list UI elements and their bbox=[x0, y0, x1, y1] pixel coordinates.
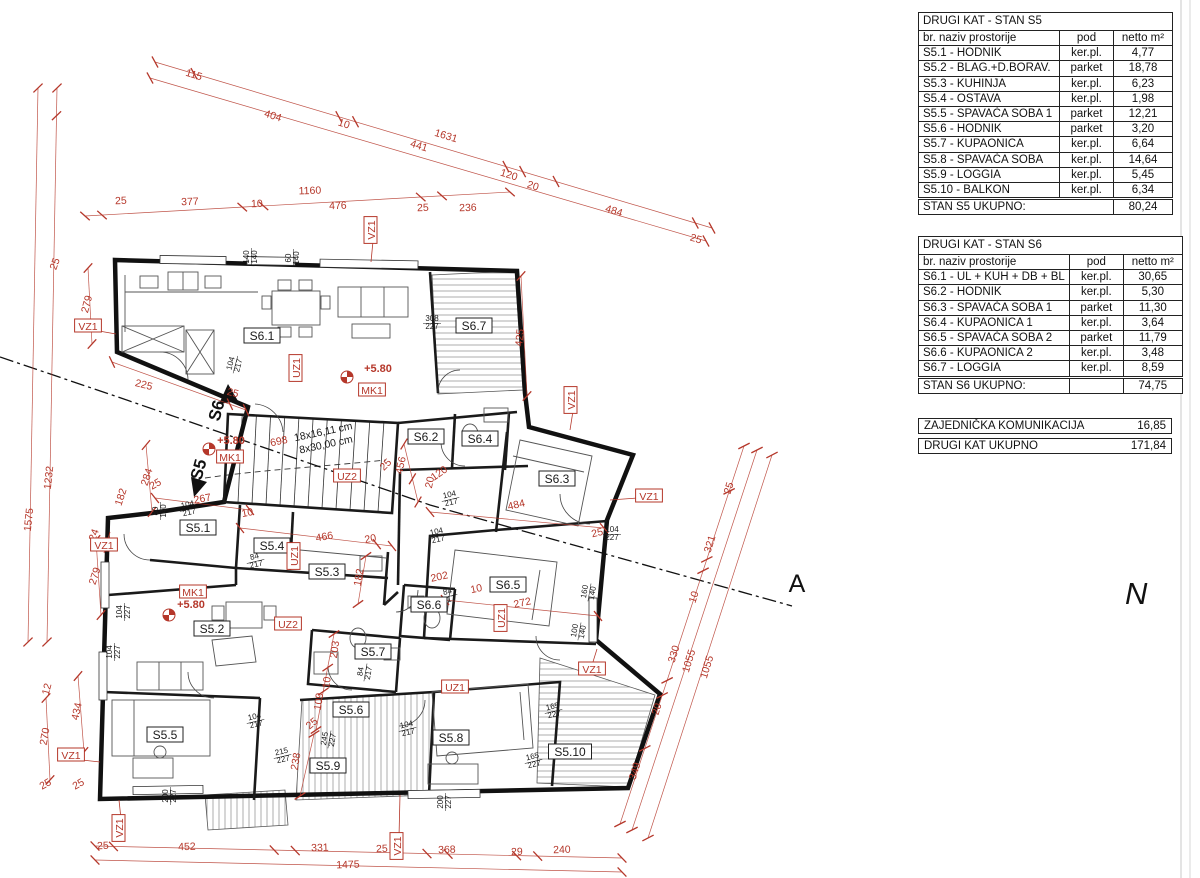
table-row: S5.10 - BALKONker.pl.6,34 bbox=[919, 182, 1173, 198]
summary-label: ZAJEDNIČKA KOMUNIKACIJA bbox=[924, 420, 1084, 432]
room-label: S5.9 bbox=[310, 758, 346, 773]
svg-text:MK1: MK1 bbox=[182, 587, 204, 599]
cell: 14,64 bbox=[1114, 152, 1173, 167]
dimension-label: 330 bbox=[666, 644, 683, 664]
dimension-label: 240 bbox=[553, 844, 571, 857]
stair-step bbox=[266, 417, 271, 505]
cell: S6.7 - LOGGIA bbox=[919, 361, 1070, 377]
stair-step bbox=[364, 423, 370, 512]
summary-value: 16,85 bbox=[1137, 420, 1166, 432]
dimension-line bbox=[404, 444, 418, 502]
svg-text:S6.4: S6.4 bbox=[468, 432, 493, 446]
cell: parket bbox=[1069, 300, 1123, 315]
dimension-label: 441 bbox=[409, 138, 429, 155]
cell: ker.pl. bbox=[1060, 46, 1114, 61]
dimension-label: 466 bbox=[315, 529, 335, 544]
dimension-tick bbox=[751, 447, 762, 453]
svg-text:S6.2: S6.2 bbox=[414, 430, 439, 444]
cell: ker.pl. bbox=[1060, 137, 1114, 152]
dimension-label: 1055 bbox=[680, 648, 698, 674]
dimension-tick bbox=[353, 600, 363, 607]
col-header: netto m² bbox=[1114, 31, 1173, 46]
cell: S6.2 - HODNIK bbox=[919, 285, 1070, 300]
dimension-tick bbox=[520, 166, 526, 177]
dimension-label: 25 bbox=[48, 256, 63, 271]
svg-text:S6.6: S6.6 bbox=[417, 598, 442, 612]
marker-label-vz1: VZ1 bbox=[91, 538, 118, 552]
svg-text:VZ1: VZ1 bbox=[392, 836, 404, 855]
table-row: S5.3 - KUHINJAker.pl.6,23 bbox=[919, 76, 1173, 91]
dimension-tick bbox=[697, 568, 708, 574]
svg-text:S6.3: S6.3 bbox=[545, 472, 570, 486]
dimension-label: 331 bbox=[311, 842, 329, 855]
dimension-label: 20 bbox=[526, 179, 541, 194]
dimension-label: 20 bbox=[650, 702, 665, 717]
dimension-label: 20 bbox=[364, 532, 378, 546]
dimension-tick bbox=[738, 443, 749, 449]
cell: 3,20 bbox=[1114, 122, 1173, 137]
table-row: S6.5 - SPAVAĆA SOBA 2parket11,79 bbox=[919, 330, 1183, 345]
dimension-tick bbox=[409, 473, 416, 484]
cell: ker.pl. bbox=[1069, 315, 1123, 330]
section-line bbox=[0, 357, 792, 606]
size-label: 160140 bbox=[579, 582, 599, 603]
level-marker bbox=[203, 443, 215, 455]
table-title: DRUGI KAT - STAN S6 bbox=[919, 237, 1183, 255]
svg-text:UZ2: UZ2 bbox=[337, 471, 357, 483]
dimension-label: 25 bbox=[70, 776, 86, 792]
kitchen-counter bbox=[125, 275, 258, 332]
size-label: 104227 bbox=[115, 603, 132, 621]
stair-step bbox=[280, 418, 285, 506]
svg-text:VZ1: VZ1 bbox=[78, 321, 97, 333]
dimension-tick bbox=[322, 664, 333, 671]
svg-text:S5.7: S5.7 bbox=[361, 645, 386, 659]
cell: S6.1 - UL + KUH + DB + BL bbox=[919, 270, 1070, 285]
cell: S5.9 - LOGGIA bbox=[919, 167, 1060, 182]
dimension-label: 1475 bbox=[336, 859, 360, 872]
dimension-label: 10 bbox=[241, 506, 255, 520]
col-header: pod bbox=[1060, 31, 1114, 46]
room-label: S5.2 bbox=[194, 621, 230, 636]
table-row: S6.3 - SPAVAĆA SOBA 1parket11,30 bbox=[919, 300, 1183, 315]
size-label: 104227 bbox=[105, 643, 122, 661]
stove bbox=[205, 276, 221, 288]
dimension-tick bbox=[109, 356, 114, 368]
col-header: br. naziv prostorije bbox=[919, 31, 1060, 46]
col-header: br. naziv prostorije bbox=[919, 255, 1070, 270]
svg-text:S5.5: S5.5 bbox=[153, 728, 178, 742]
dimension-line bbox=[95, 846, 622, 858]
svg-text:S5.8: S5.8 bbox=[439, 731, 464, 745]
svg-text:S6.1: S6.1 bbox=[250, 329, 275, 343]
size-label: 80140 bbox=[151, 502, 168, 520]
svg-text:S5.9: S5.9 bbox=[316, 759, 341, 773]
cell: 4,77 bbox=[1114, 46, 1173, 61]
svg-text:S5.1: S5.1 bbox=[186, 521, 211, 535]
svg-text:MK1: MK1 bbox=[219, 452, 241, 464]
dimension-label: 12 bbox=[40, 682, 55, 697]
dimension-line bbox=[85, 192, 510, 216]
room-label: S6.7 bbox=[456, 318, 492, 333]
svg-text:S5.4: S5.4 bbox=[260, 539, 285, 553]
table-row: S6.4 - KUPAONICA 1ker.pl.3,64 bbox=[919, 315, 1183, 330]
total-value: 74,75 bbox=[1123, 377, 1182, 393]
marker-label-uz1: UZ1 bbox=[442, 680, 469, 694]
sofa-s61 bbox=[338, 287, 408, 338]
dimension-tick bbox=[692, 217, 698, 228]
dimension-tick bbox=[701, 557, 712, 563]
dimension-label: 202 bbox=[430, 569, 450, 584]
cell: parket bbox=[1069, 330, 1123, 345]
dimension-label: 236 bbox=[459, 202, 477, 215]
table-row: S5.2 - BLAG.+D.BORAV.parket18,78 bbox=[919, 61, 1173, 76]
room-label: S6.6 bbox=[411, 597, 447, 612]
stair-arrow-label-s5: S5 bbox=[187, 457, 211, 482]
room-label: S6.2 bbox=[408, 429, 444, 444]
dimension-label: 25 bbox=[689, 232, 704, 247]
table-row: S5.8 - SPAVAĆA SOBAker.pl.14,64 bbox=[919, 152, 1173, 167]
dimension-label: 109 bbox=[312, 692, 326, 711]
stair-step bbox=[252, 417, 256, 504]
dimension-tick bbox=[152, 56, 158, 67]
dimension-label: 225 bbox=[134, 377, 154, 393]
cell: 5,45 bbox=[1114, 167, 1173, 182]
dimension-label: 29 bbox=[511, 846, 523, 858]
marker-label-vz1: VZ1 bbox=[636, 489, 663, 503]
dimension-tick bbox=[709, 222, 715, 233]
dimension-line bbox=[47, 88, 57, 642]
room-label: S5.8 bbox=[433, 730, 469, 745]
marker-label-vz1: VZ1 bbox=[390, 833, 404, 860]
marker-label-mk1: MK1 bbox=[180, 585, 207, 599]
cell: S5.1 - HODNIK bbox=[919, 46, 1060, 61]
cell: 8,59 bbox=[1123, 361, 1182, 377]
dimension-label: 10 bbox=[687, 590, 702, 605]
room-label: S5.4 bbox=[254, 538, 290, 553]
marker-label-uz1: UZ1 bbox=[289, 355, 303, 382]
cell: 6,34 bbox=[1114, 182, 1173, 198]
cell: ker.pl. bbox=[1060, 91, 1114, 106]
table-row: S5.9 - LOGGIAker.pl.5,45 bbox=[919, 167, 1173, 182]
dimension-label: 1575 bbox=[22, 507, 36, 532]
size-label: 84217 bbox=[355, 662, 375, 683]
cell: S6.6 - KUPAONICA 2 bbox=[919, 346, 1070, 361]
dimension-label: 25 bbox=[722, 481, 737, 496]
size-label: 104217 bbox=[245, 710, 266, 731]
cell: 18,78 bbox=[1114, 61, 1173, 76]
room-label: S5.7 bbox=[355, 644, 391, 659]
svg-text:VZ1: VZ1 bbox=[61, 750, 80, 762]
dimension-label: 1160 bbox=[298, 185, 321, 198]
cell: 5,30 bbox=[1123, 285, 1182, 300]
room-label: S6.5 bbox=[490, 577, 526, 592]
dimension-label: 321 bbox=[702, 534, 719, 554]
cell: 6,23 bbox=[1114, 76, 1173, 91]
size-label: 308227 bbox=[423, 314, 441, 331]
dimension-label: 203 bbox=[328, 640, 342, 659]
svg-text:VZ1: VZ1 bbox=[582, 664, 601, 676]
room-label: S5.10 bbox=[549, 744, 592, 759]
dimension-label: 182 bbox=[352, 568, 367, 587]
marker-label-uz2: UZ2 bbox=[275, 617, 302, 631]
closet-crossed bbox=[122, 326, 214, 374]
col-header: pod bbox=[1069, 255, 1123, 270]
marker-label-vz1: VZ1 bbox=[579, 662, 606, 676]
cell: 11,30 bbox=[1123, 300, 1182, 315]
level-label: +5.80 bbox=[364, 363, 392, 375]
marker-label-vz1: VZ1 bbox=[564, 387, 578, 414]
cell: ker.pl. bbox=[1060, 182, 1114, 198]
total-label: STAN S5 UKUPNO: bbox=[919, 199, 1114, 215]
svg-text:UZ1: UZ1 bbox=[496, 608, 508, 628]
dimension-label: 1631 bbox=[433, 127, 459, 145]
cell: ker.pl. bbox=[1060, 167, 1114, 182]
size-label: 104227 bbox=[603, 525, 621, 542]
marker-label-vz1: VZ1 bbox=[364, 217, 378, 244]
svg-text:VZ1: VZ1 bbox=[639, 491, 658, 503]
table-row: S6.6 - KUPAONICA 2ker.pl.3,48 bbox=[919, 346, 1183, 361]
cell: ker.pl. bbox=[1060, 152, 1114, 167]
table-row: S6.2 - HODNIKker.pl.5,30 bbox=[919, 285, 1183, 300]
dimension-label: 10 bbox=[337, 117, 352, 132]
dimension-label: 115 bbox=[184, 67, 204, 83]
table-row: S5.1 - HODNIKker.pl.4,77 bbox=[919, 46, 1173, 61]
cell: S5.10 - BALKON bbox=[919, 182, 1060, 198]
dimension-tick bbox=[614, 821, 625, 827]
cell: S5.4 - OSTAVA bbox=[919, 91, 1060, 106]
svg-text:UZ1: UZ1 bbox=[445, 682, 465, 694]
total-label: STAN S6 UKUPNO: bbox=[919, 377, 1070, 393]
dimension-line bbox=[28, 88, 38, 642]
level-label: +5.80 bbox=[217, 435, 245, 447]
cell: 12,21 bbox=[1114, 106, 1173, 121]
dimension-label: 10 bbox=[320, 676, 334, 689]
dimension-label: 10 bbox=[469, 582, 483, 596]
section-letter: A bbox=[789, 570, 806, 598]
table-stan-s5: DRUGI KAT - STAN S5 br. naziv prostorije… bbox=[918, 12, 1173, 215]
dimension-label: 182 bbox=[113, 487, 130, 508]
cell: S5.2 - BLAG.+D.BORAV. bbox=[919, 61, 1060, 76]
table-row: S6.7 - LOGGIAker.pl.8,59 bbox=[919, 361, 1183, 377]
svg-text:S5.3: S5.3 bbox=[315, 565, 340, 579]
cell: S6.5 - SPAVAĆA SOBA 2 bbox=[919, 330, 1070, 345]
room-label: S6.4 bbox=[462, 431, 498, 446]
dimension-tick bbox=[626, 827, 637, 833]
table-row: S5.4 - OSTAVAker.pl.1,98 bbox=[919, 91, 1173, 106]
svg-text:UZ1: UZ1 bbox=[289, 546, 301, 566]
dimension-tick bbox=[703, 235, 709, 246]
dimension-label: 1055 bbox=[698, 654, 716, 680]
cell: 6,64 bbox=[1114, 137, 1173, 152]
summary-floor-total: DRUGI KAT UKUPNO 171,84 bbox=[918, 438, 1172, 454]
dimension-label: 25 bbox=[378, 456, 395, 473]
dimension-label: 25 bbox=[115, 195, 127, 207]
cell: 3,64 bbox=[1123, 315, 1182, 330]
cell: 1,98 bbox=[1114, 91, 1173, 106]
level-marker bbox=[341, 371, 353, 383]
cell: S5.6 - HODNIK bbox=[919, 122, 1060, 137]
dimension-label: 484 bbox=[604, 203, 624, 220]
dimension-label: 484 bbox=[506, 497, 526, 513]
svg-text:S6.5: S6.5 bbox=[496, 578, 521, 592]
dimension-label: 425 bbox=[513, 328, 527, 347]
dimension-label: 10 bbox=[251, 198, 263, 210]
cell: S5.5 - SPAVAĆA SOBA 1 bbox=[919, 106, 1060, 121]
table-title: DRUGI KAT - STAN S5 bbox=[919, 13, 1173, 31]
size-label: 104217 bbox=[440, 488, 461, 509]
room-schedule-panel: DRUGI KAT - STAN S5 br. naziv prostorije… bbox=[918, 0, 1200, 878]
svg-text:VZ1: VZ1 bbox=[114, 818, 126, 837]
svg-text:MK1: MK1 bbox=[361, 385, 383, 397]
cell: ker.pl. bbox=[1069, 285, 1123, 300]
size-label: 200227 bbox=[161, 787, 178, 805]
svg-text:UZ2: UZ2 bbox=[278, 619, 298, 631]
table-stan-s6: DRUGI KAT - STAN S6 br. naziv prostorije… bbox=[918, 236, 1183, 394]
dimension-label: 452 bbox=[178, 841, 196, 854]
dimension-label: 1232 bbox=[42, 465, 56, 490]
room-label: S5.1 bbox=[180, 520, 216, 535]
marker-label-vz1: VZ1 bbox=[75, 319, 102, 333]
dimension-line bbox=[632, 450, 757, 830]
marker-label-vz1: VZ1 bbox=[58, 748, 85, 762]
table-row: S5.6 - HODNIKparket3,20 bbox=[919, 122, 1173, 137]
marker-label-vz1: VZ1 bbox=[112, 815, 126, 842]
room-label: S6.1 bbox=[244, 328, 280, 343]
cell: ker.pl. bbox=[1069, 361, 1123, 377]
marker-label-uz1: UZ1 bbox=[287, 543, 301, 570]
marker-label-uz1: UZ1 bbox=[494, 605, 508, 632]
room-label: S5.6 bbox=[333, 702, 369, 717]
summary-label: DRUGI KAT UKUPNO bbox=[924, 440, 1038, 452]
size-label: 200227 bbox=[436, 793, 453, 811]
marker-label-mk1: MK1 bbox=[359, 383, 386, 397]
cell: S5.7 - KUPAONICA bbox=[919, 137, 1060, 152]
room-label: S6.3 bbox=[539, 471, 575, 486]
dimension-label: 456 bbox=[393, 455, 408, 475]
cell: S6.4 - KUPAONICA 1 bbox=[919, 315, 1070, 330]
dimension-tick bbox=[401, 439, 408, 450]
svg-text:S6.7: S6.7 bbox=[462, 319, 487, 333]
svg-text:UZ1: UZ1 bbox=[291, 358, 303, 378]
svg-text:VZ1: VZ1 bbox=[366, 220, 378, 239]
marker-label-mk1: MK1 bbox=[217, 450, 244, 464]
svg-text:S5.10: S5.10 bbox=[554, 745, 586, 759]
summary-value: 171,84 bbox=[1131, 440, 1166, 452]
cell: ker.pl. bbox=[1060, 76, 1114, 91]
dimension-line bbox=[430, 512, 604, 528]
cell: parket bbox=[1060, 61, 1114, 76]
table-row: S6.1 - UL + KUH + DB + BLker.pl.30,65 bbox=[919, 270, 1183, 285]
cell: ker.pl. bbox=[1069, 346, 1123, 361]
level-label: +5.80 bbox=[177, 599, 205, 611]
dimension-label: 476 bbox=[329, 200, 347, 213]
cell: 30,65 bbox=[1123, 270, 1182, 285]
svg-text:S5.6: S5.6 bbox=[339, 703, 364, 717]
size-label: 104217 bbox=[224, 353, 245, 375]
dimension-tick bbox=[661, 677, 672, 683]
svg-text:S5.2: S5.2 bbox=[200, 622, 225, 636]
size-label: 140140 bbox=[242, 248, 259, 266]
dimension-label: 404 bbox=[263, 108, 283, 125]
dimension-label: 270 bbox=[38, 727, 53, 746]
dimension-tick bbox=[147, 72, 153, 83]
dimension-tick bbox=[553, 176, 559, 187]
dimension-label: 279 bbox=[79, 294, 95, 314]
svg-text:VZ1: VZ1 bbox=[566, 390, 578, 409]
room-label: S5.5 bbox=[147, 727, 183, 742]
room-label: S5.3 bbox=[309, 564, 345, 579]
sofa-s52 bbox=[137, 602, 276, 690]
size-label: 100140 bbox=[569, 621, 589, 642]
col-header: netto m² bbox=[1123, 255, 1182, 270]
cell: S6.3 - SPAVAĆA SOBA 1 bbox=[919, 300, 1070, 315]
cell: S5.3 - KUHINJA bbox=[919, 76, 1060, 91]
dimension-label: 434 bbox=[69, 701, 84, 721]
dimension-line bbox=[150, 78, 706, 241]
summary-shared-circulation: ZAJEDNIČKA KOMUNIKACIJA 16,85 bbox=[918, 418, 1172, 434]
cell: S5.8 - SPAVAĆA SOBA bbox=[919, 152, 1060, 167]
total-value: 80,24 bbox=[1114, 199, 1173, 215]
dimension-label: 368 bbox=[438, 844, 456, 857]
cell: parket bbox=[1060, 122, 1114, 137]
dimension-label: 272 bbox=[513, 595, 533, 610]
svg-text:VZ1: VZ1 bbox=[94, 540, 113, 552]
cell: 11,79 bbox=[1123, 330, 1182, 345]
cell: parket bbox=[1060, 106, 1114, 121]
dimension-label: 25 bbox=[97, 840, 109, 852]
dimension-label: 25 bbox=[376, 843, 388, 855]
dimension-line bbox=[648, 455, 772, 838]
dimension-tick bbox=[352, 116, 358, 127]
dimension-tick bbox=[642, 835, 653, 841]
dimension-label: 25 bbox=[417, 202, 429, 214]
marker-label-uz2: UZ2 bbox=[334, 469, 361, 483]
cell: ker.pl. bbox=[1069, 270, 1123, 285]
table-row: S5.5 - SPAVAĆA SOBA 1parket12,21 bbox=[919, 106, 1173, 121]
level-marker bbox=[163, 609, 175, 621]
dimension-label: 377 bbox=[181, 196, 199, 209]
dimension-tick bbox=[766, 452, 777, 458]
stair-count: 698 bbox=[269, 434, 289, 449]
table-row: S5.7 - KUPAONICAker.pl.6,64 bbox=[919, 137, 1173, 152]
cell: 3,48 bbox=[1123, 346, 1182, 361]
